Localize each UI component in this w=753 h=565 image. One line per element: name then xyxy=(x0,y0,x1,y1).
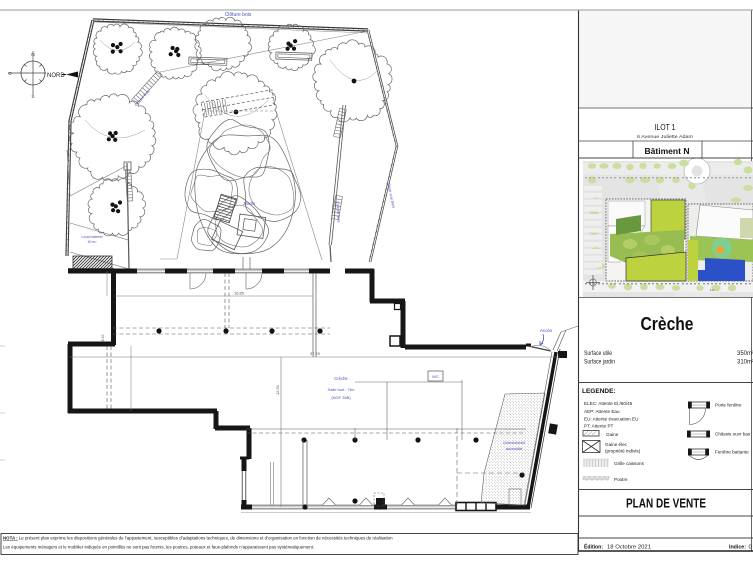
svg-text:Châssis ouvr bas: Châssis ouvr bas xyxy=(715,432,751,437)
svg-text:Cheminement: Cheminement xyxy=(503,441,525,445)
svg-text:12.51: 12.51 xyxy=(275,384,280,395)
svg-text:6 Avenue Juliette Adam: 6 Avenue Juliette Adam xyxy=(637,134,693,139)
svg-text:Porte fenêtre: Porte fenêtre xyxy=(715,403,742,408)
svg-text:Gaine élec: Gaine élec xyxy=(605,442,628,447)
svg-text:310m²: 310m² xyxy=(737,360,753,366)
svg-text:Local matériel: Local matériel xyxy=(81,235,102,239)
svg-text:WC: WC xyxy=(432,374,439,379)
svg-text:N: N xyxy=(31,52,35,58)
svg-text:(propriété indivis): (propriété indivis) xyxy=(605,449,641,454)
svg-text:Crèche: Crèche xyxy=(334,376,348,381)
svg-text:ELEC: Attente El./60/45: ELEC: Attente El./60/45 xyxy=(584,401,633,406)
svg-text:Accès: Accès xyxy=(540,328,553,333)
svg-text:Clôture bois: Clôture bois xyxy=(225,12,252,18)
svg-text:Édition:: Édition: xyxy=(584,543,603,551)
svg-text:Gaine: Gaine xyxy=(606,432,619,437)
svg-text:Surface jardin: Surface jardin xyxy=(584,360,615,366)
svg-text:ILOT 1: ILOT 1 xyxy=(655,123,676,132)
svg-text:Jardin: Jardin xyxy=(243,201,256,206)
svg-text:NOTA : Le présent plan exprime: NOTA : Le présent plan exprime les dispo… xyxy=(3,536,393,541)
svg-text:Crèche: Crèche xyxy=(641,314,694,334)
svg-text:(NGF 35B): (NGF 35B) xyxy=(331,395,351,400)
svg-text:8.16: 8.16 xyxy=(101,335,105,342)
svg-text:18 Octobre 2021: 18 Octobre 2021 xyxy=(607,545,651,551)
svg-text:Les équipements ménagers et le: Les équipements ménagers et le mobilier … xyxy=(3,545,314,550)
svg-text:S: S xyxy=(31,94,34,100)
svg-text:Indice:: Indice: xyxy=(729,545,746,551)
svg-text:37.20: 37.20 xyxy=(310,351,321,356)
svg-text:350m²: 350m² xyxy=(737,351,753,357)
svg-text:Poutre: Poutre xyxy=(614,477,628,482)
svg-text:EU: Attente évacuation EU: EU: Attente évacuation EU xyxy=(584,417,638,422)
svg-text:LEGENDE:: LEGENDE: xyxy=(582,388,616,395)
svg-text:16.85: 16.85 xyxy=(234,291,245,296)
svg-text:accessible: accessible xyxy=(506,447,523,451)
svg-text:Bâtiment N: Bâtiment N xyxy=(645,147,690,156)
svg-text:0: 0 xyxy=(749,545,752,551)
svg-text:Surface utile: Surface utile xyxy=(584,351,613,357)
svg-text:PLAN DE VENTE: PLAN DE VENTE xyxy=(626,496,706,511)
svg-text:1:2: 1:2 xyxy=(710,288,715,292)
svg-text:NORD: NORD xyxy=(47,73,65,79)
svg-text:40 m²: 40 m² xyxy=(88,240,98,244)
svg-text:Fenêtre battante: Fenêtre battante xyxy=(715,450,749,455)
svg-text:Salle tout : 7trn: Salle tout : 7trn xyxy=(328,387,355,392)
svg-text:AEP: Attente Eau: AEP: Attente Eau xyxy=(584,409,620,414)
svg-text:Grille caissons: Grille caissons xyxy=(614,461,645,466)
svg-text:PT: Attente PT: PT: Attente PT xyxy=(584,424,614,429)
